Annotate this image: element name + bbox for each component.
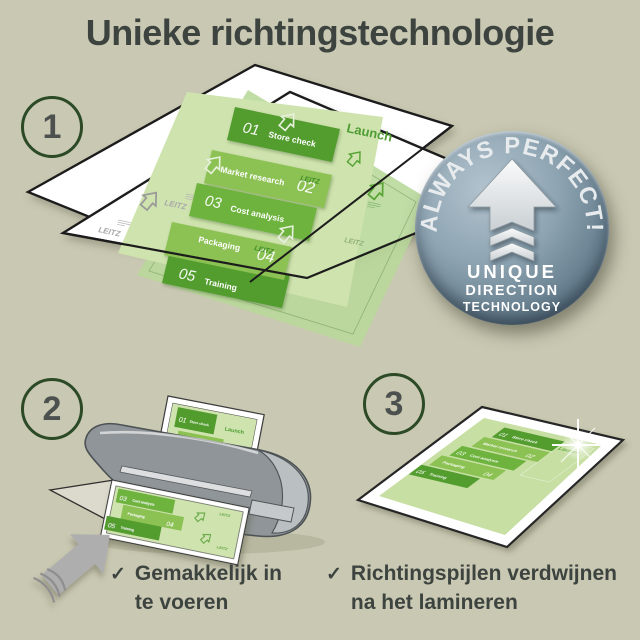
badge-word-2: DIRECTION (465, 283, 558, 299)
always-perfect-badge: ALWAYS PERFECT! UNIQUE DIRECTION TECHNOL… (415, 131, 609, 325)
row-number: 01 (178, 417, 187, 425)
row-number: 01 (241, 119, 261, 139)
check-icon: ✓ (326, 565, 342, 618)
benefit-line-1: Richtingspijlen verdwijnen (351, 560, 617, 589)
benefit-line-1: Gemakkelijk in (135, 560, 282, 589)
pouch-corner-outline (50, 480, 114, 520)
benefit-line-2: te voeren (135, 589, 282, 618)
badge-word-1: UNIQUE (467, 261, 557, 282)
badge-art: ALWAYS PERFECT! UNIQUE DIRECTION TECHNOL… (415, 131, 609, 325)
step-number: 1 (43, 108, 62, 147)
badge-words: UNIQUE DIRECTION TECHNOLOGY (463, 261, 561, 314)
benefit-easy-feed: ✓ Gemakkelijk in te voeren (110, 560, 282, 618)
badge-word-3: TECHNOLOGY (463, 300, 561, 314)
benefit-line-2: na het lamineren (351, 589, 617, 618)
laminated-document: 01 Store check Market research 02 03 Cos… (358, 407, 623, 547)
step-1-circle: 1 (21, 96, 83, 158)
product-infographic: Unieke richtingstechnologie LEITZ LEITZ … (0, 0, 640, 640)
page-title: Unieke richtingstechnologie (0, 12, 640, 54)
check-icon: ✓ (110, 565, 126, 618)
benefit-arrows-disappear: ✓ Richtingspijlen verdwijnen na het lami… (326, 560, 617, 618)
badge-arrow-icon (468, 159, 556, 261)
